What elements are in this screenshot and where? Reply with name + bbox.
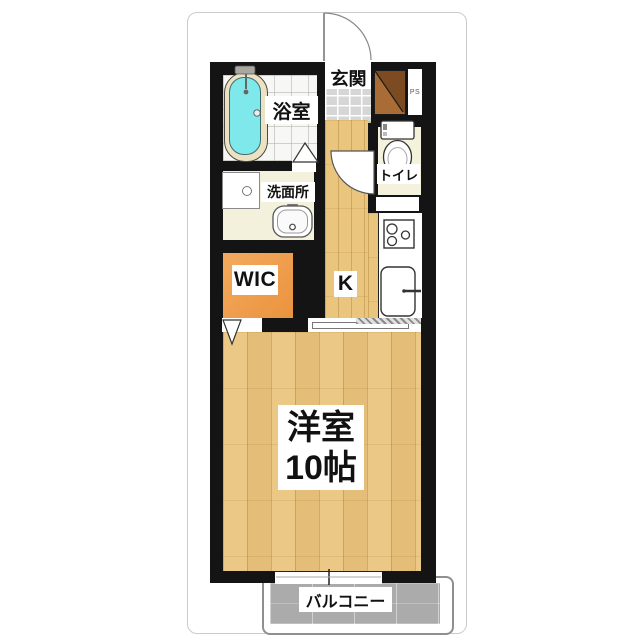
pipe-space: PS xyxy=(408,69,422,115)
pipe-space-label: PS xyxy=(410,89,420,96)
main-room-label-line1: 洋室 xyxy=(287,408,355,448)
main-room-label-line2: 10帖 xyxy=(285,448,357,488)
sliding-door-track xyxy=(356,318,421,324)
sliding-door xyxy=(308,318,421,332)
floor-plan-image: PS xyxy=(0,0,640,640)
main-room-label: 洋室 10帖 xyxy=(278,405,364,490)
hallway-floor-lower xyxy=(368,213,378,319)
wic-door-opening xyxy=(222,318,262,332)
shoe-cabinet xyxy=(374,70,406,115)
entrance-label: 玄関 xyxy=(326,66,371,89)
bathtub-water xyxy=(229,77,261,155)
toilet-shelf xyxy=(376,197,419,211)
washroom-label: 洗面所 xyxy=(261,182,315,202)
bathtub xyxy=(224,72,268,162)
balcony-label: バルコニー xyxy=(299,587,392,612)
toilet-label: トイレ xyxy=(377,164,420,184)
wic-label: WIC xyxy=(232,265,278,295)
washer-drain-icon xyxy=(242,186,252,196)
bathroom-label: 浴室 xyxy=(265,96,318,124)
kitchen-counter xyxy=(378,213,422,318)
kitchen-label: K xyxy=(334,271,357,297)
toilet-floor xyxy=(378,127,421,195)
washing-machine-pan xyxy=(222,172,260,209)
balcony-window xyxy=(275,571,382,584)
